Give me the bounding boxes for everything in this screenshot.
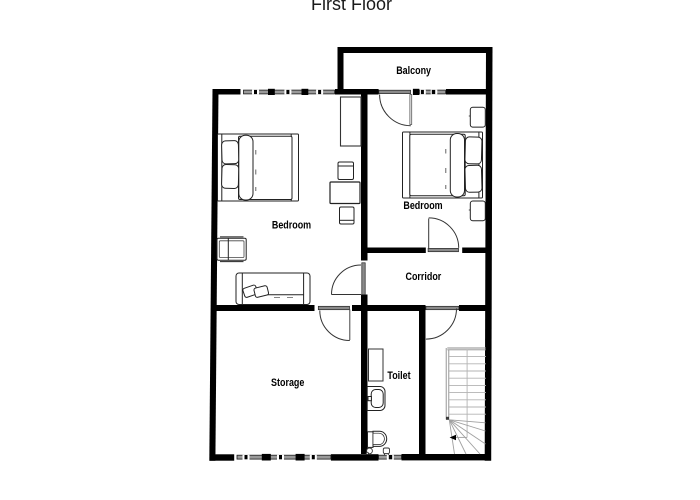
svg-text:Corridor: Corridor xyxy=(406,271,442,283)
svg-text:Storage: Storage xyxy=(271,377,305,389)
svg-text:First Floor: First Floor xyxy=(311,0,392,14)
svg-text:Toilet: Toilet xyxy=(387,370,411,382)
svg-text:Bedroom: Bedroom xyxy=(272,219,311,231)
svg-text:Balcony: Balcony xyxy=(396,65,431,77)
svg-text:Bedroom: Bedroom xyxy=(403,200,442,212)
